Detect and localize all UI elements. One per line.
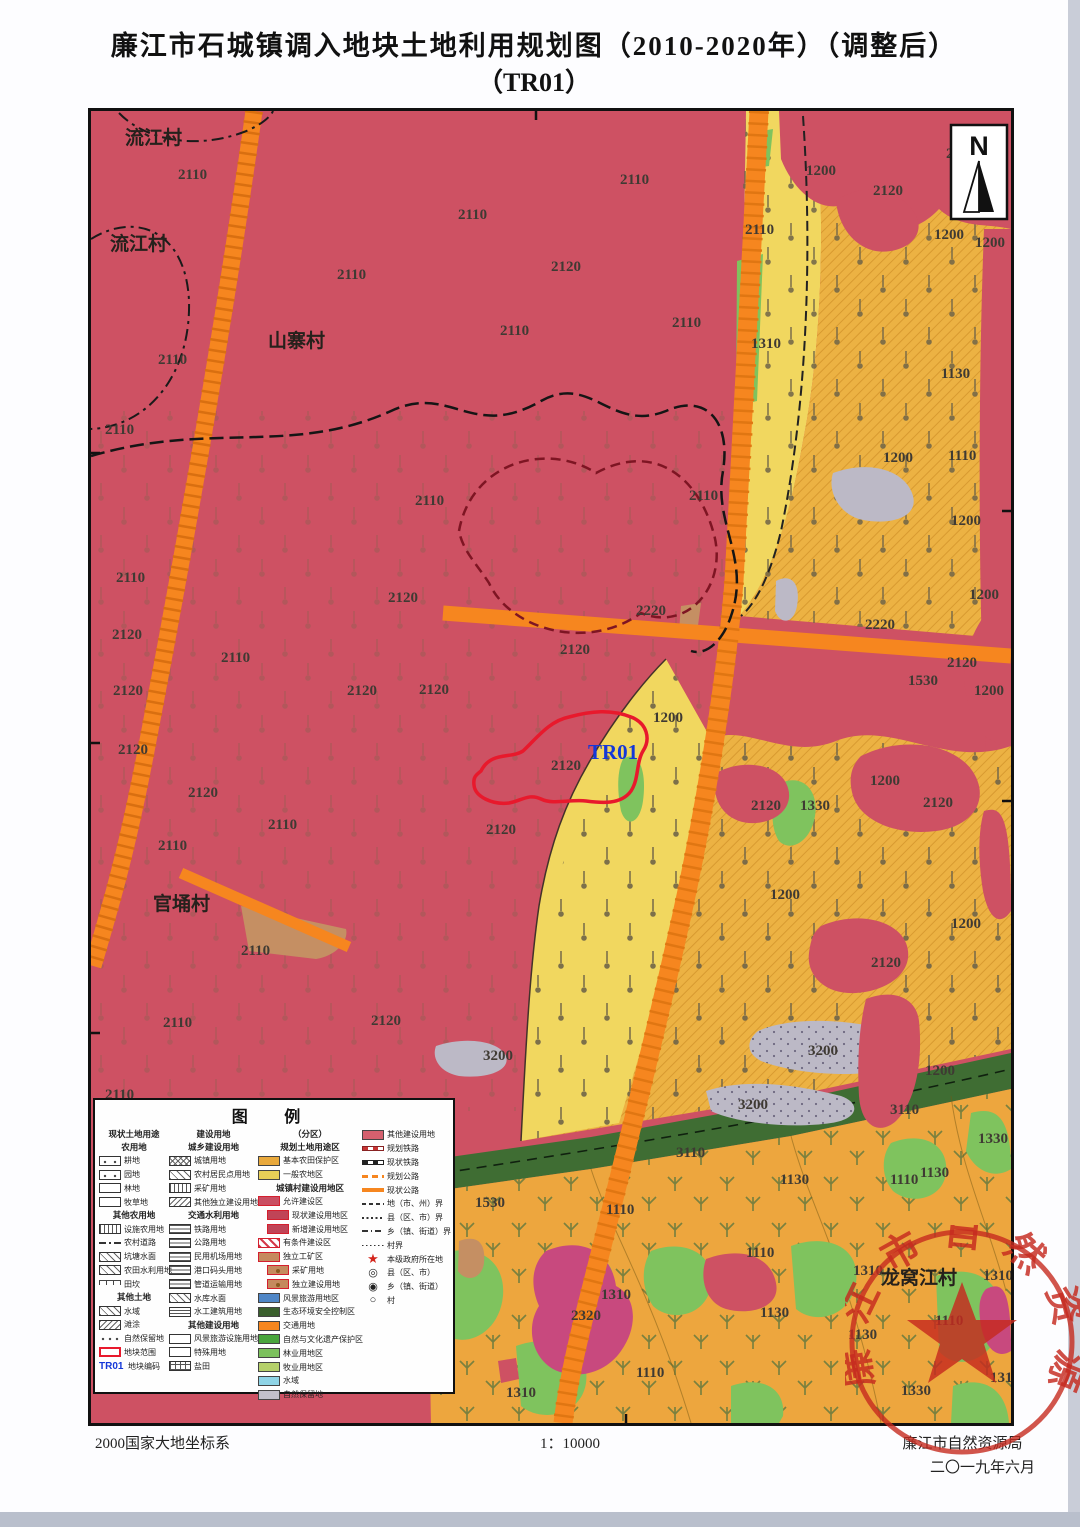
legend-item-label: 农田水利用地 [124,1265,172,1276]
legend-item-label: 牧草地 [124,1197,148,1208]
legend-item: 管道运输用地 [169,1277,258,1291]
legend-item: 交通用地 [258,1319,362,1333]
legend-item: 牧业用地区 [258,1360,362,1374]
map-label-1200: 1200 [951,916,981,932]
map-label-1200: 1200 [969,587,999,603]
legend-swatch-hdash [169,1307,191,1317]
legend-item: ◉乡（镇、街道） [362,1280,451,1294]
legend-item: 现状建设用地区 [258,1208,362,1222]
map-label-1130: 1130 [760,1305,789,1321]
legend-item-label: 林地 [124,1183,140,1194]
legend-swatch-hlines [169,1265,191,1275]
legend-item: 民用机场用地 [169,1250,258,1264]
legend-item: 港口码头用地 [169,1264,258,1278]
map-label-2110: 2110 [689,488,718,504]
legend-item-label: 一般农地区 [283,1169,323,1180]
issue-date: 二〇一九年六月 [880,1456,1080,1477]
legend-item-label: 地（市、州）界 [387,1198,443,1209]
legend-item-label: 独立工矿区 [283,1251,323,1262]
legend-section-header: 规划土地用途区 [258,1141,362,1154]
coordinate-system: 2000国家大地坐标系 [95,1432,230,1453]
legend-item: 农田水利用地 [99,1264,169,1278]
map-label-2110: 2110 [268,817,297,833]
legend-item-label: 铁路用地 [194,1224,226,1235]
map-label-3110: 3110 [676,1145,705,1161]
legend-item-label: 水工建筑用地 [194,1306,242,1317]
legend-item: 公路用地 [169,1236,258,1250]
map-label-2110: 2110 [620,172,649,188]
legend-swatch-plain [99,1197,121,1207]
legend-swatch-line [99,1242,121,1244]
legend-item: 水域 [99,1304,169,1318]
legend-item: 县（区、市）界 [362,1211,451,1225]
legend-section-header: 城镇村建设用地区 [258,1182,362,1195]
legend-swatch-mine0 [258,1252,280,1262]
legend-item-label: 现状建设用地区 [292,1210,348,1221]
map-label-1110: 1110 [606,1202,634,1218]
legend-item: 自然保留地 [99,1332,169,1346]
legend-item-label: 自然保留地 [283,1389,323,1400]
legend-swatch-c_49a53c [258,1334,280,1344]
legend-section-header: 建设用地 [169,1128,258,1141]
legend-item: 乡（镇、街道）界 [362,1225,451,1239]
legend-swatch-c_e9a93c [258,1156,280,1166]
legend-item-label: 地块范围 [124,1347,156,1358]
legend-item: 盐田 [169,1359,258,1373]
map-label-2120: 2120 [118,742,148,758]
legend-swatch-tkan [99,1280,121,1285]
map-label-2120: 2120 [388,590,418,606]
map-label-2110: 2110 [116,570,145,586]
map-label-1130: 1130 [848,1327,877,1343]
map-label-1130: 1130 [780,1172,809,1188]
legend-swatch-diag2 [169,1197,191,1207]
legend-item: 其他建设用地 [362,1128,451,1142]
map-label-2120: 2120 [923,795,953,811]
legend-columns: 现状土地用途农用地耕地园地林地牧草地其他农用地设施农用地农村道路坑塘水面农田水利… [95,1127,453,1402]
map-label-3200: 3200 [483,1048,513,1064]
map-label-2120: 2120 [551,259,581,275]
legend-item-label: 自然与文化遗产保护区 [283,1334,363,1345]
legend-item: 坑塘水面 [99,1250,169,1264]
legend-swatch-allow [258,1196,280,1206]
legend-item-label: 现状公路 [387,1185,419,1196]
legend-item-label: 水域 [124,1306,140,1317]
map-label-2110: 2110 [672,315,701,331]
legend-swatch-road2 [362,1188,384,1192]
legend-swatch-bnd4 [362,1245,384,1247]
legend-swatch-road1 [362,1175,384,1178]
map-label-2120: 2120 [486,822,516,838]
legend-item-label: 基本农田保护区 [283,1155,339,1166]
legend-swatch-circ0: ○ [362,1295,384,1305]
legend-swatch-circ1: ◉ [362,1282,384,1292]
legend-swatch-c_3a5f2d [258,1307,280,1317]
village-label: 龙窝江村 [881,1266,957,1289]
agency-name: 廉江市自然资源局 [860,1432,1065,1453]
legend-swatch-diag [99,1265,121,1275]
legend-item: 林地 [99,1182,169,1196]
legend-item: 现状铁路 [362,1156,451,1170]
legend-swatch-grid [169,1361,191,1371]
map-label-1330: 1330 [800,798,830,814]
legend-swatch-diag [99,1252,121,1262]
legend-item: 采矿用地 [258,1264,362,1278]
legend-swatch-dot3 [99,1334,121,1344]
map-label-2120: 2120 [371,1013,401,1029]
legend-item: 耕地 [99,1154,169,1168]
map-label-2220: 2220 [865,617,895,633]
map-label-2120: 2120 [947,655,977,671]
legend-item-label: 盐田 [194,1361,210,1372]
map-label-1200: 1200 [653,710,683,726]
map-label-2110: 2110 [178,167,207,183]
map-label-1310: 1310 [751,336,781,352]
map-label-2110: 2110 [500,323,529,339]
plot-code-label: TR01 [588,740,638,764]
legend-swatch-rail1 [362,1146,384,1151]
legend-swatch-plain [169,1334,191,1344]
legend-swatch-rail2 [362,1160,384,1165]
legend-item: 自然保留地 [258,1388,362,1402]
legend-section-header: 其他建设用地 [169,1319,258,1332]
map-label-2120: 2120 [873,183,903,199]
legend-item-label: 新增建设用地区 [292,1224,348,1235]
map-label-2110: 2110 [158,838,187,854]
map-label-1330: 1330 [978,1131,1008,1147]
legend-section-header: 农用地 [99,1141,169,1154]
map-label-2120: 2120 [347,683,377,699]
legend-swatch-minedot [267,1265,289,1275]
legend-swatch-c_8fd4e6 [258,1376,280,1386]
map-label-2120: 2120 [112,627,142,643]
legend-item-label: 农村道路 [124,1237,156,1248]
legend-item: 独立工矿区 [258,1250,362,1264]
legend-swatch-c_b5d06a [258,1362,280,1372]
map-label-3200: 3200 [808,1043,838,1059]
map-label-1130: 1130 [920,1165,949,1181]
map-label-1530: 1530 [475,1195,505,1211]
legend-item: 地（市、州）界 [362,1197,451,1211]
legend-item-label: 公路用地 [194,1237,226,1248]
legend-item-label: 县（区、市）界 [387,1212,443,1223]
legend-item-label: 现状铁路 [387,1157,419,1168]
legend-item: 生态环境安全控制区 [258,1305,362,1319]
map-label-1310: 1310 [853,1263,883,1279]
map-label-1330: 1330 [901,1383,931,1399]
map-label-2110: 2110 [415,493,444,509]
legend-swatch-bnd1 [362,1203,384,1206]
legend-item-label: 城镇用地 [194,1155,226,1166]
legend-item-label: 民用机场用地 [194,1251,242,1262]
legend-swatch-plot [99,1347,121,1357]
legend-item: 新增建设用地区 [258,1222,362,1236]
legend-item: 滩涂 [99,1318,169,1332]
legend-item: 田坎 [99,1277,169,1291]
scan-edge-bottom [0,1512,1080,1527]
legend-item: 风景旅游设施用地 [169,1332,258,1346]
legend-item: 风景旅游用地区 [258,1291,362,1305]
legend-swatch-diag [169,1293,191,1303]
legend-item: 地块范围 [99,1346,169,1360]
legend-item-label: 林业用地区 [283,1348,323,1359]
village-label: 流江村 [110,232,167,255]
map-scale: 1：10000 [470,1432,670,1453]
map-label-2120: 2120 [419,682,449,698]
legend-item-label: 风景旅游设施用地 [194,1333,258,1344]
legend-swatch-diag2 [99,1320,121,1330]
legend-item: 农村道路 [99,1236,169,1250]
legend-item: 独立建设用地 [258,1277,362,1291]
legend-item: ○村 [362,1294,451,1308]
map-label-3200: 3200 [738,1097,768,1113]
map-label-1200: 1200 [806,163,836,179]
legend-item-label: 坑塘水面 [124,1251,156,1262]
legend-swatch-c_7cc15d [258,1348,280,1358]
legend-item: 农村居民点用地 [169,1168,258,1182]
map-label-3110: 3110 [890,1102,919,1118]
legend-item: 水工建筑用地 [169,1305,258,1319]
legend-swatch-c_d4606e [362,1130,384,1140]
legend-item: 一般农地区 [258,1168,362,1182]
map-label-2110: 2110 [241,943,270,959]
legend-item-label: 生态环境安全控制区 [283,1306,355,1317]
map-label-2120: 2120 [560,642,590,658]
legend-item-label: 采矿用地 [194,1183,226,1194]
legend-swatch-c_c2c0ca [258,1390,280,1400]
legend-item-label: 风景旅游用地区 [283,1293,339,1304]
legend-item-label: 其他建设用地 [387,1129,435,1140]
legend-swatch-dots2 [99,1156,121,1166]
legend-swatch-bnd2 [362,1217,384,1219]
legend-swatch-bnd3 [362,1230,384,1232]
legend-item: 规划铁路 [362,1142,451,1156]
map-label-1110: 1110 [935,1313,963,1329]
legend-item-label: 牧业用地区 [283,1362,323,1373]
legend-item: 允许建设区 [258,1195,362,1209]
legend-box: 图 例 现状土地用途农用地耕地园地林地牧草地其他农用地设施农用地农村道路坑塘水面… [93,1098,455,1394]
map-label-1310: 1310 [506,1385,536,1401]
legend-item-label: 水域 [283,1375,299,1386]
village-label: 流江村 [125,126,182,149]
map-label-2120: 2120 [188,785,218,801]
legend-item-label: 本级政府所在地 [387,1254,443,1265]
map-label-2120: 2120 [871,955,901,971]
north-arrow: N [951,125,1007,219]
legend-item-label: 地块编码 [128,1361,160,1372]
legend-item-label: 特殊用地 [194,1347,226,1358]
legend-swatch-cond [258,1238,280,1248]
map-label-2220: 2220 [636,603,666,619]
legend-section-header: 交通水利用地 [169,1209,258,1222]
legend-item: 城镇用地 [169,1154,258,1168]
legend-item-label: 乡（镇、街道） [387,1281,443,1292]
legend-item: 水域 [258,1374,362,1388]
map-label-2120: 2120 [113,683,143,699]
legend-item-label: 耕地 [124,1155,140,1166]
map-label-2110: 2110 [105,422,134,438]
legend-item-label: 田坎 [124,1279,140,1290]
legend-swatch-hlines [169,1252,191,1262]
legend-swatch-hlines [169,1224,191,1234]
map-label-1200: 1200 [870,773,900,789]
map-label-1310: 1310 [983,1268,1011,1284]
map-label-1200: 1200 [951,513,981,529]
legend-title: 图 例 [95,1100,453,1127]
map-label-2110: 2110 [158,352,187,368]
legend-item-label: 采矿用地 [292,1265,324,1276]
map-label-1310: 1310 [601,1287,631,1303]
map-label-2110: 2110 [163,1015,192,1031]
legend-item-label: 自然保留地 [124,1333,164,1344]
legend-swatch-vlines [99,1224,121,1234]
legend-item-label: 规划铁路 [387,1143,419,1154]
scan-edge-right [1068,0,1080,1527]
legend-swatch-c_e8cf57 [258,1170,280,1180]
legend-item: 基本农田保护区 [258,1154,362,1168]
legend-item-label: 水库水面 [194,1293,226,1304]
legend-swatch-plain [99,1183,121,1193]
map-title: 廉江市石城镇调入地块土地利用规划图（2010-2020年）（调整后） [0,24,1068,63]
legend-item: TR01地块编码 [99,1359,169,1373]
legend-section-header: （分区） [258,1128,362,1141]
legend-item-label: 县（区、市） [387,1267,435,1278]
legend-item-label: 园地 [124,1169,140,1180]
map-label-1310: 1310 [990,1370,1011,1386]
map-label-1200: 1200 [883,450,913,466]
legend-item-label: 管道运输用地 [194,1279,242,1290]
legend-section-header: 其他土地 [99,1291,169,1304]
map-label-1200: 1200 [974,683,1004,699]
legend-item: 现状公路 [362,1183,451,1197]
legend-swatch-cur [267,1224,289,1234]
map-label-2110: 2110 [337,267,366,283]
legend-swatch-cur [267,1210,289,1220]
legend-swatch-c_4f86c6 [258,1293,280,1303]
legend-section-header: 现状土地用途 [99,1128,169,1141]
legend-swatch-diag [99,1306,121,1316]
legend-item: 采矿用地 [169,1182,258,1196]
legend-item-label: 交通用地 [283,1320,315,1331]
legend-swatch-cross [169,1156,191,1166]
legend-item: 牧草地 [99,1195,169,1209]
legend-swatch-circ2: ◎ [362,1268,384,1278]
map-label-1110: 1110 [636,1365,664,1381]
legend-swatch-hlines [169,1279,191,1289]
legend-item: ★本级政府所在地 [362,1252,451,1266]
map-label-2110: 2110 [458,207,487,223]
legend-swatch-vlines [169,1183,191,1193]
legend-item: 水库水面 [169,1291,258,1305]
legend-swatch-star: ★ [362,1254,384,1264]
legend-section-header: 其他农用地 [99,1209,169,1222]
map-label-2320: 2320 [571,1308,601,1324]
legend-item: ◎县（区、市） [362,1266,451,1280]
legend-item-label: 规划公路 [387,1171,419,1182]
legend-item-label: 滩涂 [124,1319,140,1330]
map-label-1200: 1200 [934,227,964,243]
legend-swatch-dots2 [99,1170,121,1180]
legend-swatch-tr01: TR01 [99,1361,125,1371]
svg-text:N: N [969,131,989,161]
legend-item-label: 其他独立建设用地 [194,1197,258,1208]
map-label-1110: 1110 [746,1245,774,1261]
map-subtitle: （TR01） [0,62,1068,99]
legend-item-label: 农村居民点用地 [194,1169,250,1180]
map-label-1130: 1130 [941,366,970,382]
legend-item: 有条件建设区 [258,1236,362,1250]
legend-item-label: 村界 [387,1240,403,1251]
map-label-1200: 1200 [925,1063,955,1079]
scanned-page: 廉江市石城镇调入地块土地利用规划图（2010-2020年）（调整后） （TR01… [0,0,1068,1512]
legend-item: 特殊用地 [169,1346,258,1360]
legend-item-label: 设施农用地 [124,1224,164,1235]
map-label-2110: 2110 [221,650,250,666]
legend-item-label: 村 [387,1295,395,1306]
map-label-1110: 1110 [948,448,976,464]
legend-item-label: 乡（镇、街道）界 [387,1226,451,1237]
map-label-2120: 2120 [751,798,781,814]
legend-swatch-hlines [169,1238,191,1248]
village-label: 山寨村 [268,329,325,352]
legend-item: 铁路用地 [169,1222,258,1236]
legend-swatch-c_f6861f [258,1321,280,1331]
map-label-1200: 1200 [770,887,800,903]
legend-section-header: 城乡建设用地 [169,1141,258,1154]
village-label: 官埇村 [153,892,210,915]
legend-item: 设施农用地 [99,1222,169,1236]
map-label-1200: 1200 [975,235,1005,251]
map-label-1530: 1530 [908,673,938,689]
legend-item: 自然与文化遗产保护区 [258,1333,362,1347]
legend-item-label: 允许建设区 [283,1196,323,1207]
legend-item-label: 有条件建设区 [283,1237,331,1248]
legend-swatch-diag [169,1170,191,1180]
map-label-1110: 1110 [890,1172,918,1188]
legend-swatch-minedot [267,1279,289,1289]
legend-item-label: 独立建设用地 [292,1279,340,1290]
legend-item: 林业用地区 [258,1346,362,1360]
legend-item: 规划公路 [362,1169,451,1183]
legend-swatch-plain [169,1347,191,1357]
legend-item: 园地 [99,1168,169,1182]
legend-item-label: 港口码头用地 [194,1265,242,1276]
map-label-2110: 2110 [745,222,774,238]
legend-item: 其他独立建设用地 [169,1195,258,1209]
map-label-2120: 2120 [551,758,581,774]
